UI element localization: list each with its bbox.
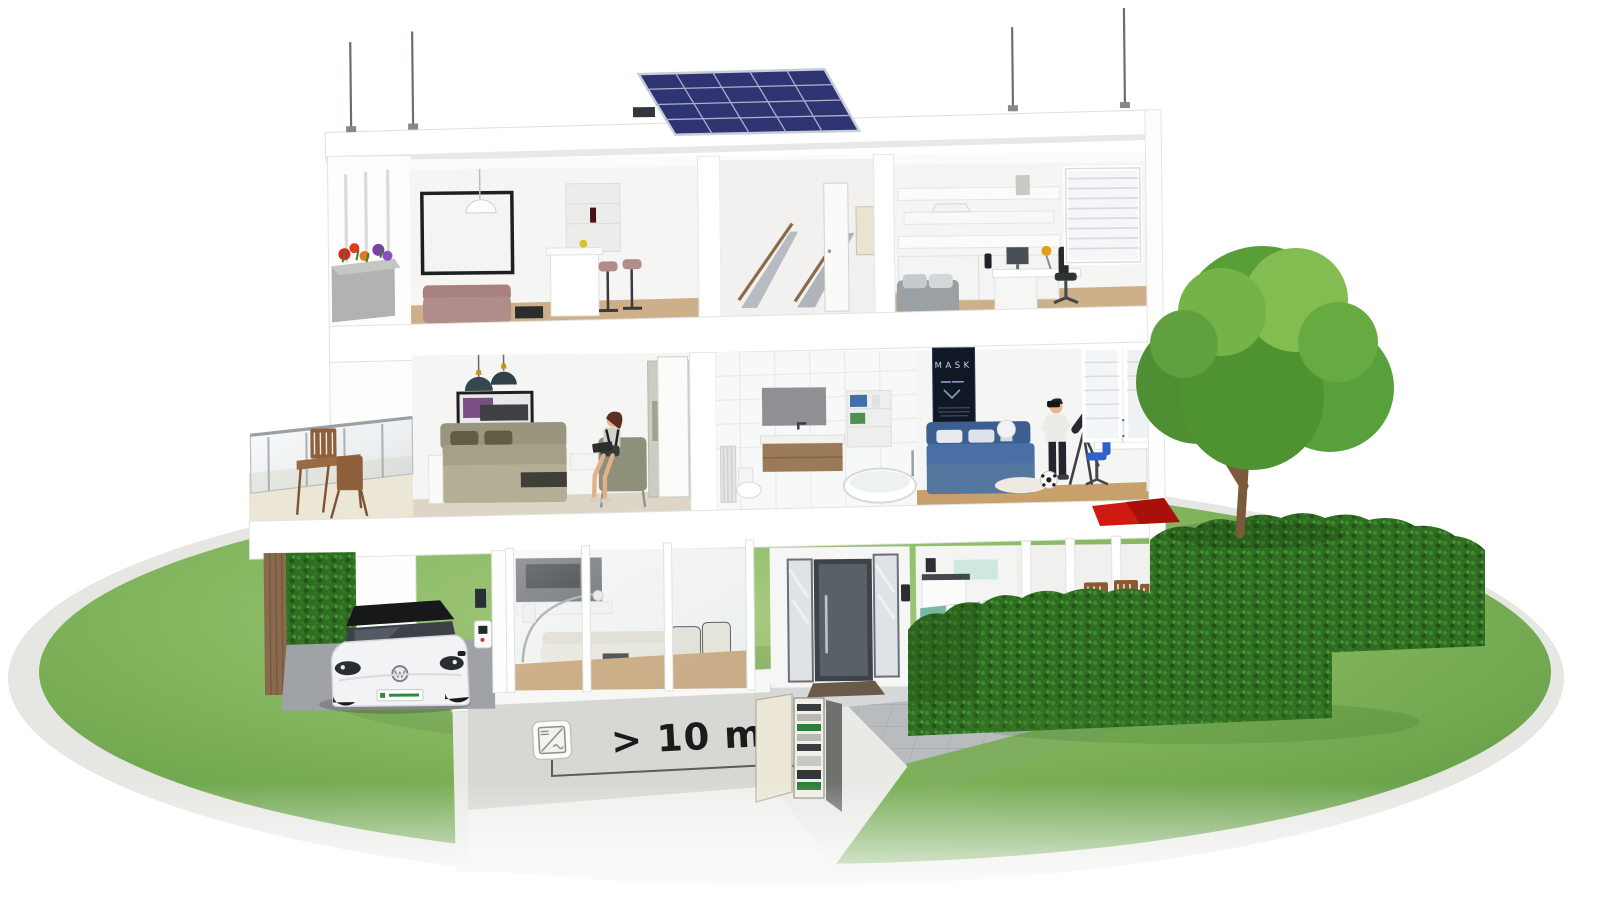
bottom-fade (0, 782, 1600, 900)
shelf-niche (566, 183, 621, 252)
small-appliance (926, 558, 936, 572)
sofa-mauve (423, 284, 511, 323)
hedge-shadow (960, 700, 1420, 744)
lightning-rod-left-1 (350, 42, 351, 130)
outdoor-fixture (475, 589, 486, 608)
mirror (762, 387, 826, 426)
mask-poster: MASK (932, 348, 975, 422)
bathroom (715, 350, 917, 518)
intercom-panel (901, 584, 910, 601)
tree-canopy (1136, 246, 1394, 470)
projection-screen (422, 192, 513, 273)
nightstand (429, 455, 444, 503)
flower-box (331, 243, 401, 323)
glass-sliding-doors (508, 548, 755, 691)
bed-olive (440, 422, 567, 503)
towels-green (850, 413, 865, 424)
smart-speaker (984, 253, 991, 268)
inverter-icon (532, 720, 572, 760)
ground-living-room (505, 540, 755, 693)
vase (1016, 175, 1030, 195)
solar-panel-array (639, 69, 860, 135)
wall-pillar (697, 156, 721, 322)
lightning-rod-left-2 (412, 32, 413, 128)
wine-bottle (590, 208, 596, 223)
radiator (720, 446, 736, 502)
circuit-breakers (797, 704, 821, 790)
faceted-pendant (932, 204, 970, 212)
top-floor (409, 152, 1151, 328)
vr-headset (1047, 401, 1060, 408)
door-sidelight-left (788, 559, 813, 681)
coffee-table-dark (515, 306, 543, 318)
towels-blue (850, 395, 867, 407)
desk-monitor (1006, 247, 1028, 264)
entrance (770, 546, 912, 697)
wallbox-charger (474, 621, 491, 648)
lightning-rod-right-1 (1012, 27, 1013, 109)
roof-vent (633, 107, 655, 117)
doormat (807, 681, 885, 698)
illustration-stage: > 10 m (0, 0, 1600, 900)
side-mirror (458, 651, 466, 656)
stairwell-door (824, 183, 849, 311)
countertop (922, 574, 970, 581)
soccer-ball (1040, 471, 1057, 488)
door-handle-bar (826, 595, 827, 653)
office-window (1066, 168, 1141, 263)
shelf-niche-towels (847, 391, 892, 447)
door-sidelight-right (874, 554, 899, 676)
stairwell (719, 159, 879, 323)
cutaway-scene: > 10 m (0, 0, 1600, 900)
wall-pillar-2 (873, 154, 895, 320)
poster-title: MASK (935, 361, 973, 371)
tree-shadow (1166, 520, 1346, 548)
teen-pants (1048, 442, 1056, 476)
wallbox-display (478, 626, 487, 634)
lightning-rod-right-2 (1124, 8, 1125, 106)
wall-pillar-3 (690, 352, 718, 518)
wall-art (458, 392, 532, 427)
bedroom-door (658, 357, 689, 497)
distance-annotation: > 10 m (610, 712, 765, 763)
bar-counter (546, 240, 603, 317)
